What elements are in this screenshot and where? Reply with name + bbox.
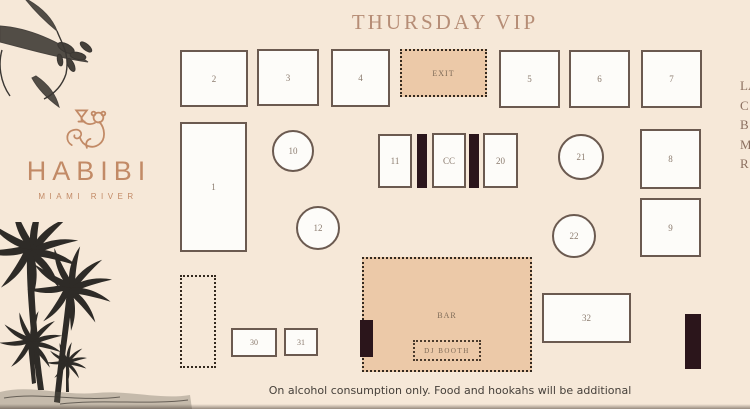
bottom-edge-shadow	[0, 404, 750, 409]
dark-block-right	[685, 314, 701, 369]
table-30[interactable]: 30	[231, 328, 277, 357]
monkey-logo-icon	[59, 106, 113, 154]
table-8[interactable]: 8	[640, 129, 701, 189]
table-20[interactable]: 20	[483, 133, 518, 188]
brand-name: HABIBI	[0, 156, 172, 187]
dark-block-bar-left	[360, 320, 373, 357]
table-8-label: 8	[668, 154, 673, 164]
table-4[interactable]: 4	[331, 49, 390, 107]
table-22-label: 22	[570, 231, 579, 241]
table-31-label: 31	[297, 338, 305, 347]
table-2[interactable]: 2	[180, 50, 248, 107]
table-10[interactable]: 10	[272, 130, 314, 172]
dashed-area	[180, 275, 216, 368]
table-10-label: 10	[289, 146, 298, 156]
table-30-label: 30	[250, 338, 258, 347]
table-2-label: 2	[212, 74, 217, 84]
table-3-label: 3	[286, 73, 291, 83]
bar-zone: BAR DJ BOOTH	[362, 257, 532, 372]
botanical-illustration	[0, 0, 118, 108]
dj-booth: DJ BOOTH	[413, 340, 481, 361]
table-5-label: 5	[527, 74, 532, 84]
table-12-label: 12	[314, 223, 323, 233]
cc-label: CC	[443, 156, 455, 166]
table-21[interactable]: 21	[558, 134, 604, 180]
right-edge-line: M	[740, 135, 750, 155]
bar-label: BAR	[364, 311, 530, 320]
table-22[interactable]: 22	[552, 214, 596, 258]
right-edge-line: LA	[740, 76, 750, 96]
table-31[interactable]: 31	[284, 328, 318, 356]
table-7-label: 7	[669, 74, 674, 84]
table-21-label: 21	[577, 152, 586, 162]
table-6-label: 6	[597, 74, 602, 84]
table-12[interactable]: 12	[296, 206, 340, 250]
table-9-label: 9	[668, 223, 673, 233]
right-edge-text: LA C B M R	[740, 76, 750, 174]
right-edge-line: B	[740, 115, 750, 135]
page-title: THURSDAY VIP	[140, 10, 750, 35]
table-32-label: 32	[582, 313, 591, 323]
dark-divider-left	[417, 134, 427, 188]
table-9[interactable]: 9	[640, 198, 701, 257]
dark-divider-right	[469, 134, 479, 188]
vip-floor-plan: HABIBI MIAMI RIVER THURSDAY VIP 2 3 4 EX…	[0, 0, 750, 409]
table-7[interactable]: 7	[641, 50, 702, 108]
disclaimer-text: On alcohol consumption only. Food and ho…	[150, 384, 750, 397]
table-3[interactable]: 3	[257, 49, 319, 106]
dj-booth-label: DJ BOOTH	[424, 347, 470, 355]
right-edge-line: C	[740, 96, 750, 116]
brand-block: HABIBI MIAMI RIVER	[0, 106, 172, 201]
right-edge-line: R	[740, 154, 750, 174]
brand-subtitle: MIAMI RIVER	[0, 192, 172, 201]
table-4-label: 4	[358, 73, 363, 83]
table-5[interactable]: 5	[499, 50, 560, 108]
table-32[interactable]: 32	[542, 293, 631, 343]
table-11[interactable]: 11	[378, 134, 412, 188]
table-1[interactable]: 1	[180, 122, 247, 252]
table-1-label: 1	[211, 182, 216, 192]
table-6[interactable]: 6	[569, 50, 630, 108]
exit-label: EXIT	[432, 69, 454, 78]
exit-zone: EXIT	[400, 49, 487, 97]
table-20-label: 20	[496, 156, 505, 166]
table-11-label: 11	[391, 156, 400, 166]
cc-station: CC	[432, 133, 466, 188]
